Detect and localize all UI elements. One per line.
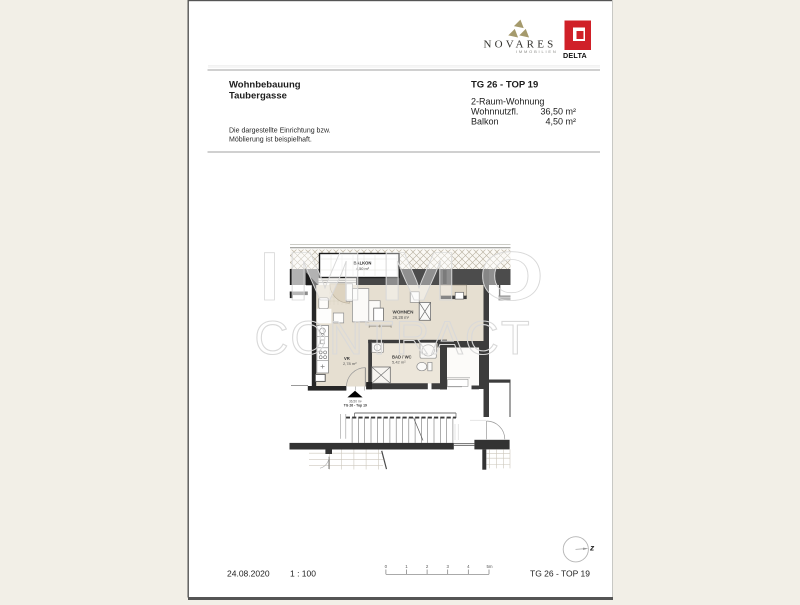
- svg-text:I: I: [260, 238, 279, 315]
- svg-text:Die dargestellte Einrichtung b: Die dargestellte Einrichtung bzw.: [229, 128, 331, 135]
- svg-text:Wohnbebauung: Wohnbebauung: [229, 80, 301, 91]
- svg-text:M: M: [380, 238, 458, 315]
- svg-text:Wohnnutzfl.: Wohnnutzfl.: [471, 107, 518, 117]
- svg-text:4,50 m²: 4,50 m²: [545, 117, 576, 127]
- svg-text:IMMOBILIEN: IMMOBILIEN: [516, 49, 558, 54]
- svg-text:M: M: [286, 238, 364, 315]
- svg-text:DELTA: DELTA: [563, 51, 587, 60]
- svg-text:O: O: [479, 238, 543, 315]
- svg-text:5m: 5m: [486, 564, 492, 569]
- svg-text:2-Raum-Wohnung: 2-Raum-Wohnung: [471, 97, 544, 107]
- svg-text:TG 26 - TOP 19: TG 26 - TOP 19: [471, 80, 538, 91]
- svg-text:TG 26 - Top 19: TG 26 - Top 19: [344, 403, 367, 407]
- svg-text:CONTRACT: CONTRACT: [254, 311, 531, 364]
- svg-text:z: z: [589, 543, 595, 553]
- svg-text:Möblierung ist beispielhaft.: Möblierung ist beispielhaft.: [229, 137, 312, 144]
- svg-text:24.08.2020: 24.08.2020: [227, 569, 270, 579]
- svg-text:1 : 100: 1 : 100: [290, 569, 316, 579]
- svg-text:TG 26 - TOP 19: TG 26 - TOP 19: [530, 569, 590, 579]
- svg-text:36,50 m²: 36,50 m²: [540, 107, 576, 117]
- svg-text:Balkon: Balkon: [471, 117, 499, 127]
- svg-text:Taubergasse: Taubergasse: [229, 91, 287, 102]
